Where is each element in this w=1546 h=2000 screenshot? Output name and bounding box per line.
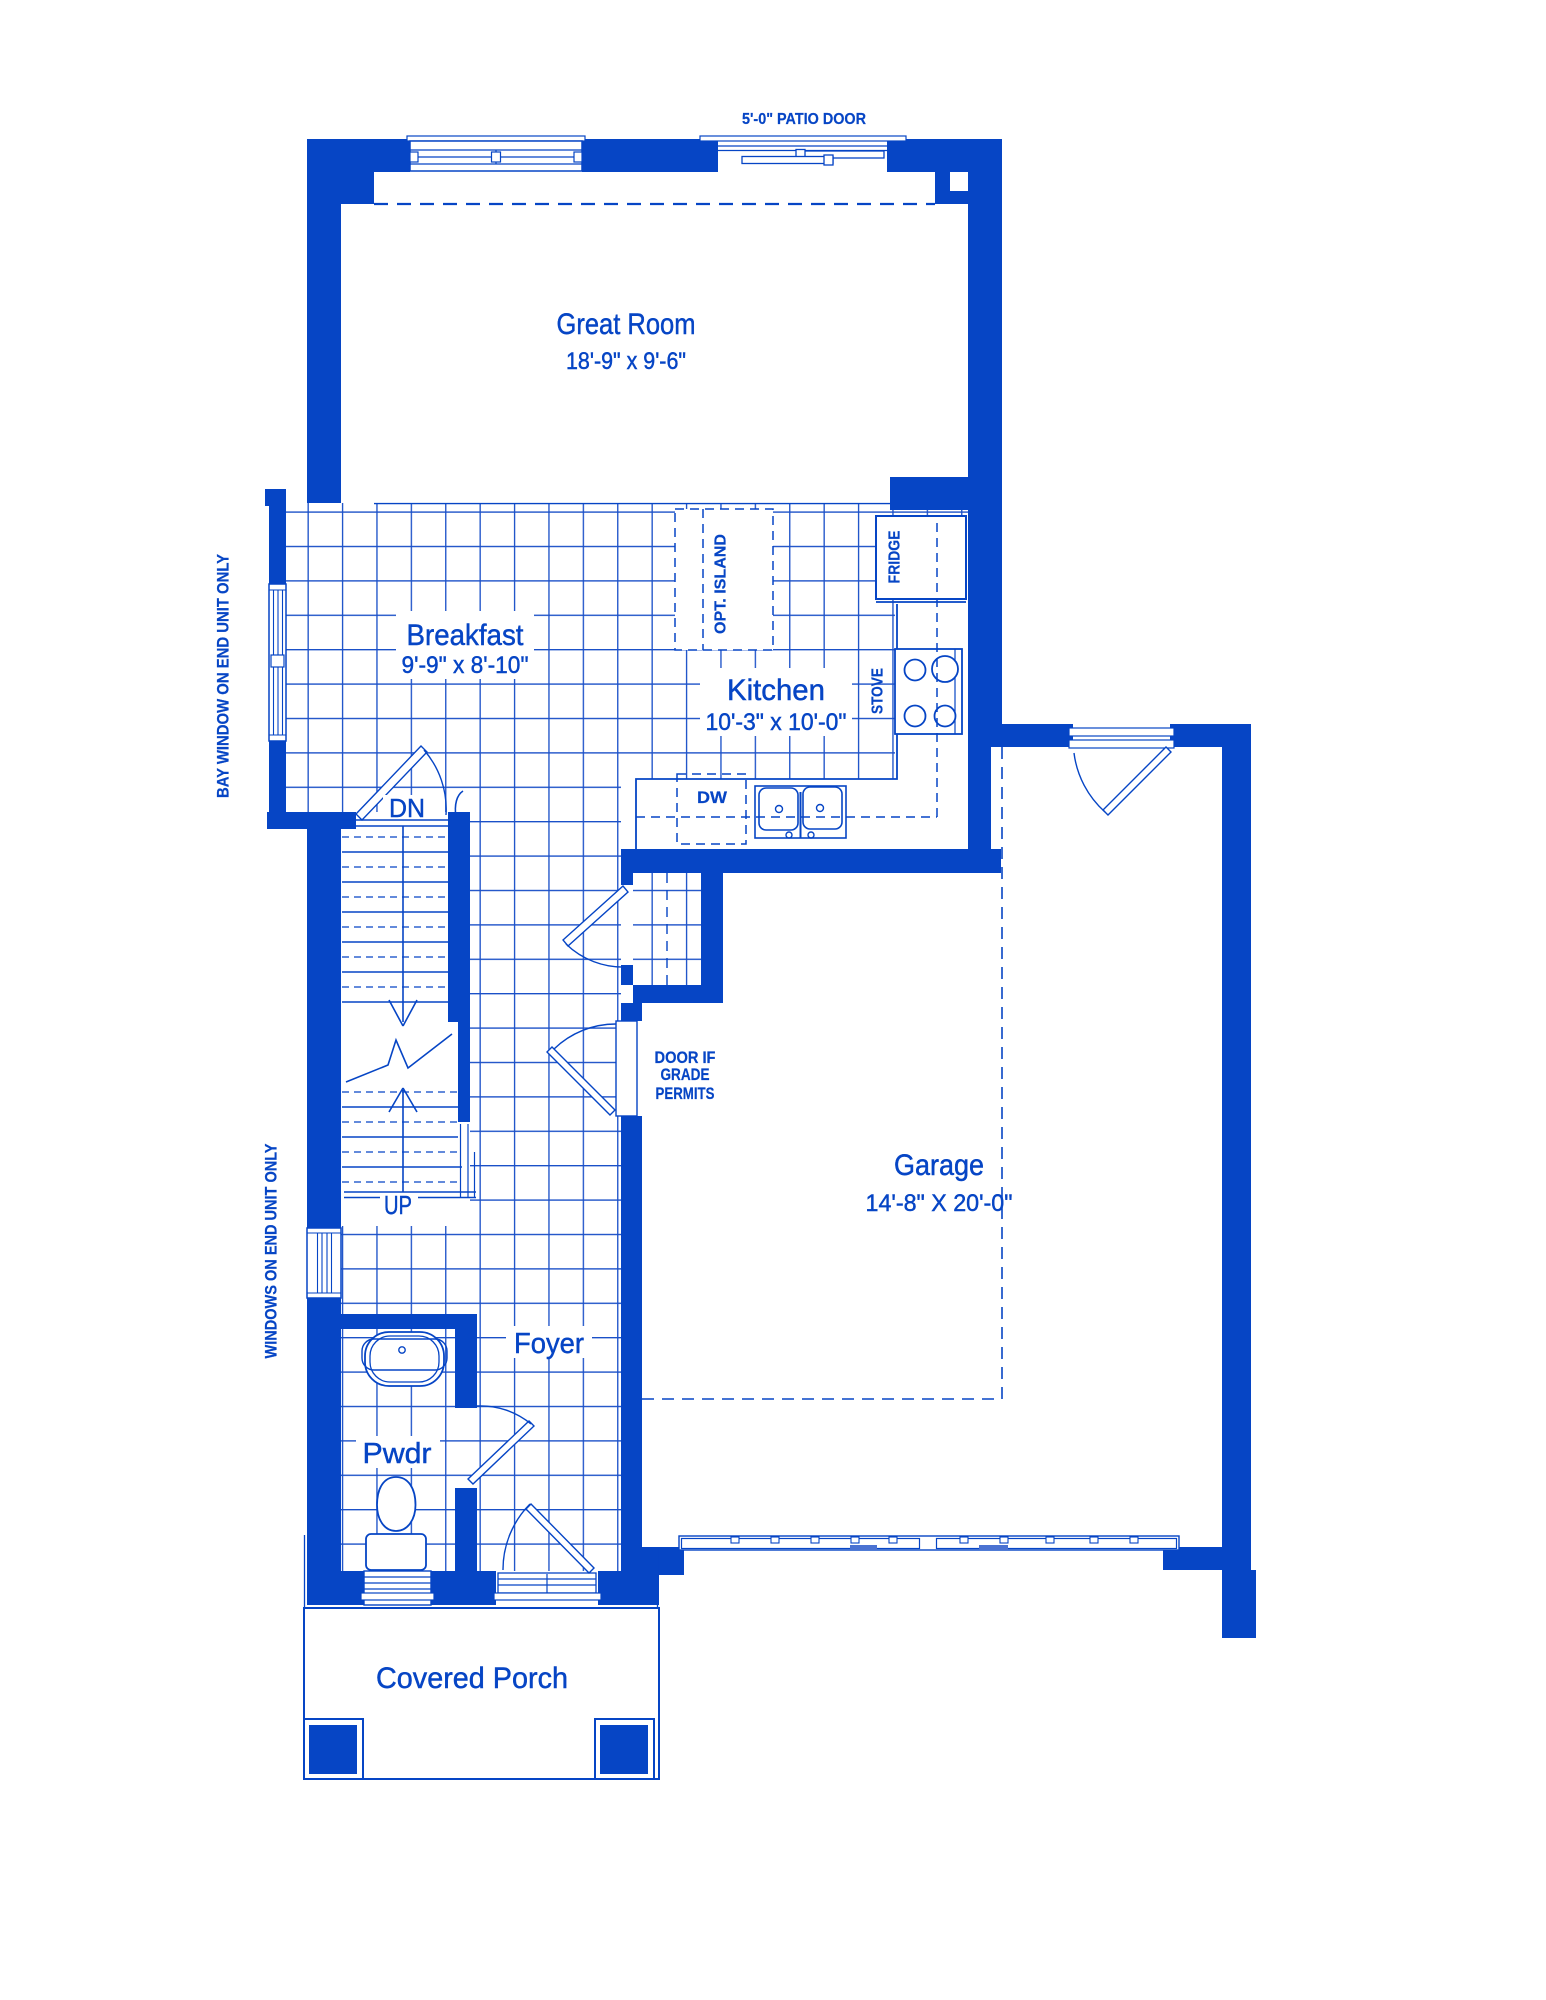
svg-text:Kitchen: Kitchen [727,674,825,707]
svg-text:OPT. ISLAND: OPT. ISLAND [713,534,730,634]
svg-text:Garage: Garage [894,1149,984,1182]
svg-text:Great Room: Great Room [557,308,696,341]
svg-text:FRIDGE: FRIDGE [887,530,904,583]
svg-text:Covered Porch: Covered Porch [376,1662,568,1695]
svg-text:9'-9" x 8'-10": 9'-9" x 8'-10" [402,652,529,679]
svg-text:10'-3" x 10'-0": 10'-3" x 10'-0" [706,709,847,736]
svg-text:DN: DN [389,793,425,823]
svg-text:5'-0" PATIO DOOR: 5'-0" PATIO DOOR [742,111,866,128]
svg-text:Breakfast: Breakfast [407,619,525,652]
svg-text:Foyer: Foyer [514,1328,584,1360]
svg-text:WINDOWS ON END UNIT ONLY: WINDOWS ON END UNIT ONLY [262,1143,281,1359]
svg-text:Pwdr: Pwdr [363,1438,432,1470]
svg-text:DW: DW [697,788,728,807]
svg-text:GRADE: GRADE [661,1065,710,1084]
svg-text:STOVE: STOVE [870,668,887,714]
svg-text:14'-8" X 20'-0": 14'-8" X 20'-0" [866,1190,1013,1217]
svg-text:UP: UP [384,1190,412,1220]
svg-text:BAY WINDOW ON END UNIT ONLY: BAY WINDOW ON END UNIT ONLY [214,553,233,798]
svg-text:18'-9" x 9'-6": 18'-9" x 9'-6" [566,348,686,375]
svg-text:PERMITS: PERMITS [656,1084,715,1103]
